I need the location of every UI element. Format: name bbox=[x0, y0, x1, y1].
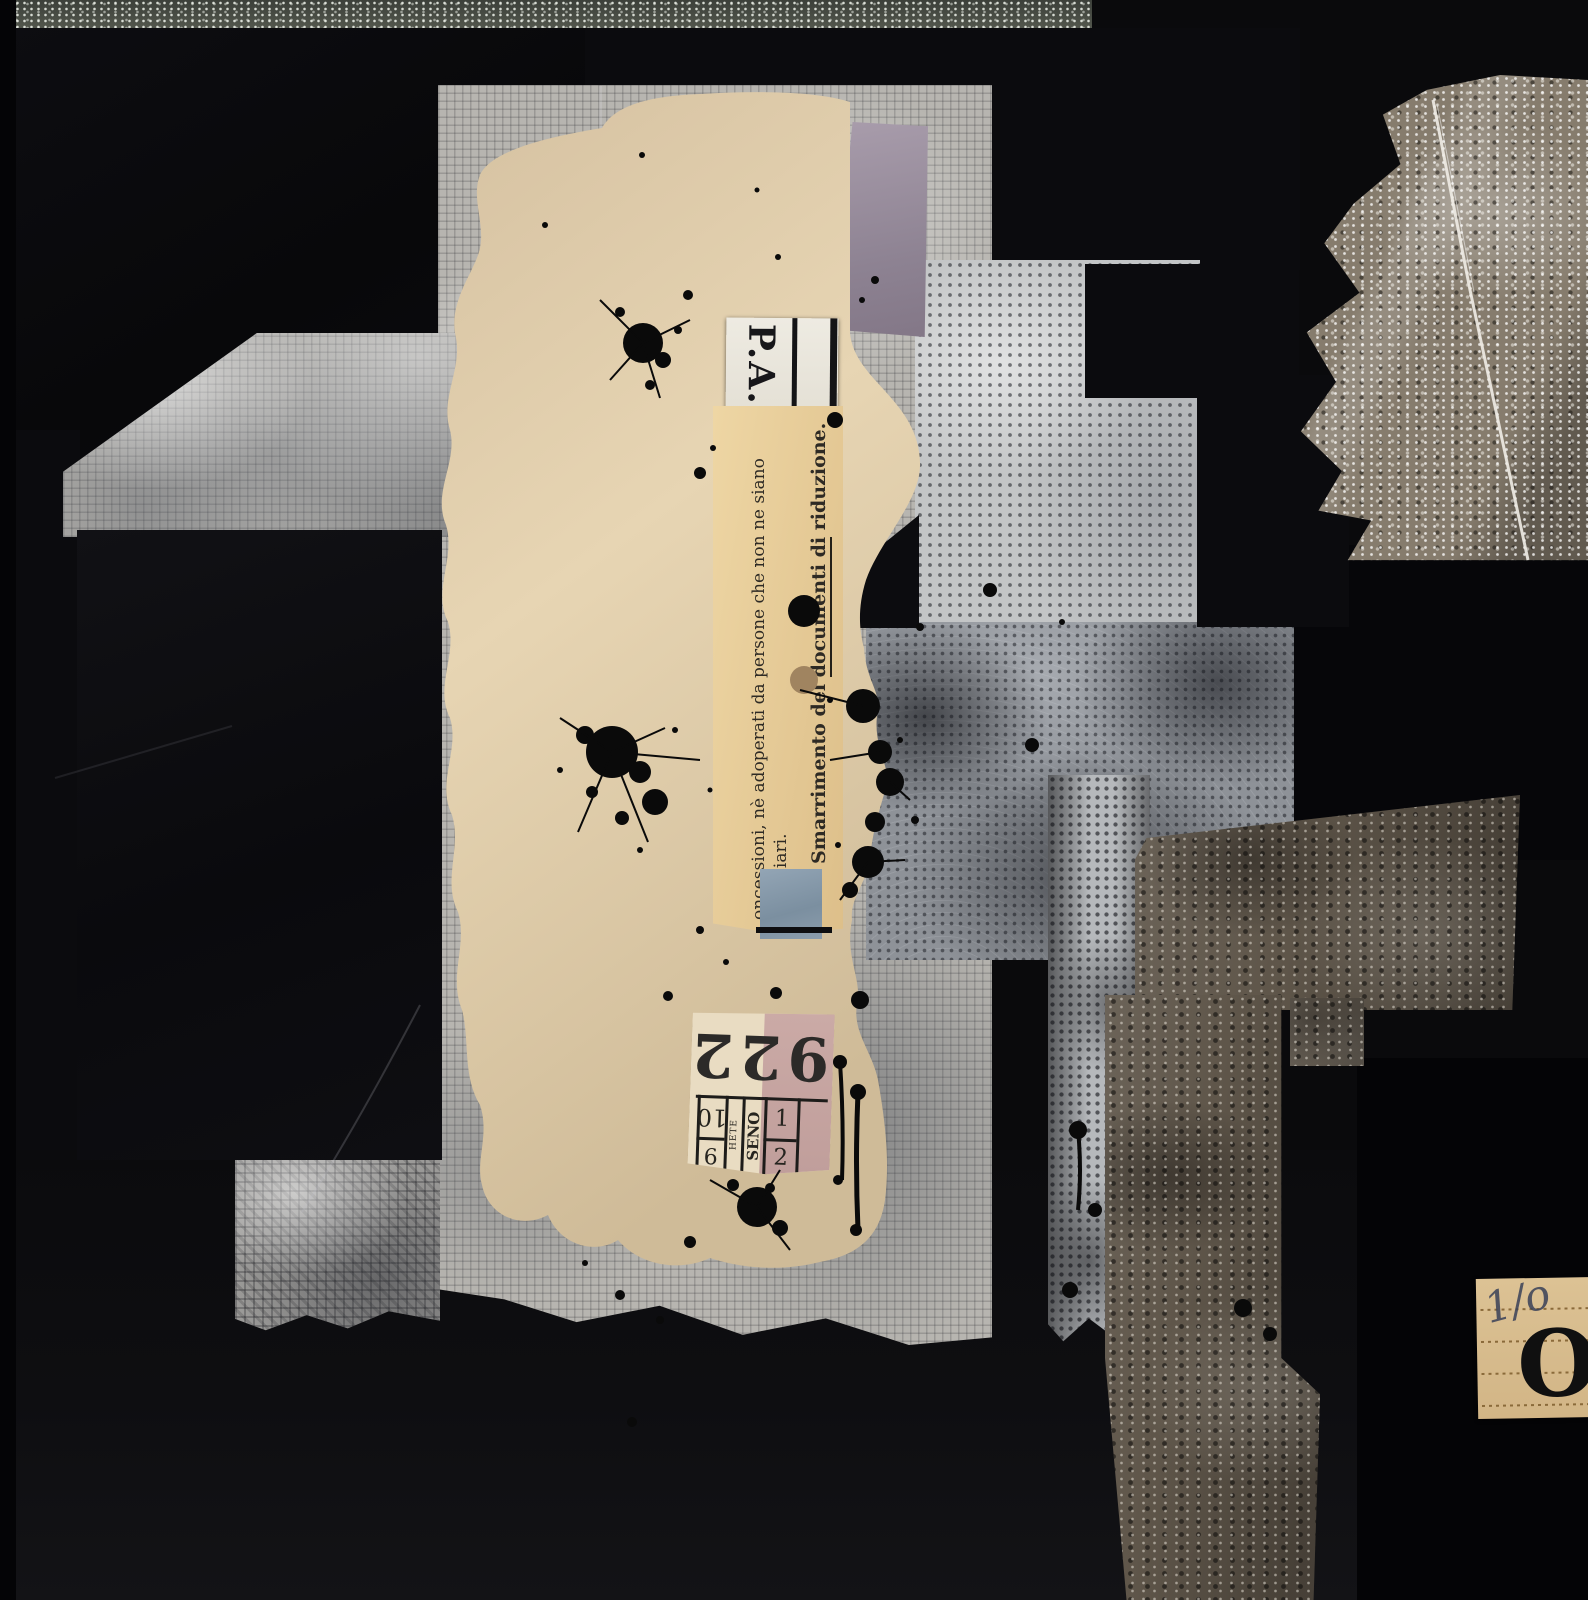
black-edge-left bbox=[0, 0, 16, 1600]
purple-paper-patch bbox=[846, 122, 928, 337]
line3-lead: Smarrimento del bbox=[808, 677, 830, 864]
black-block-upper-right bbox=[1085, 264, 1299, 398]
ticket-o-letter: O bbox=[1516, 1317, 1588, 1410]
ticket-italian-strip: oncessioni, nè adoperati da persone che … bbox=[713, 406, 843, 934]
cell-2: 2 bbox=[765, 1141, 796, 1173]
stippled-strip bbox=[0, 0, 1092, 30]
italian-line-2: eneficiari. bbox=[771, 406, 792, 920]
pa-rule-thin bbox=[792, 318, 798, 412]
houndstooth-patch-bottom-left bbox=[235, 1146, 440, 1336]
collage-canvas: P.A. oncessioni, nè adoperati da persone… bbox=[0, 0, 1588, 1600]
italian-line-3: Smarrimento del documenti di riduzione. bbox=[808, 406, 830, 864]
line3-underlined: documenti di bbox=[808, 537, 832, 677]
cell-hete: HETE bbox=[725, 1099, 743, 1171]
ticket-o: 1/o O bbox=[1476, 1277, 1588, 1419]
cell-10: 10 bbox=[698, 1098, 725, 1137]
blue-square-underline bbox=[756, 927, 832, 933]
italian-text-block: oncessioni, nè adoperati da persone che … bbox=[713, 406, 843, 934]
black-slab-left-center bbox=[77, 530, 442, 1160]
ticket-922-number: 922 bbox=[694, 1012, 833, 1101]
black-strip-top-center bbox=[585, 28, 907, 92]
ticket-922: 922 10 9 HETE SENO 1 2 bbox=[687, 1010, 835, 1177]
italian-line-1: oncessioni, nè adoperati da persone che … bbox=[749, 406, 770, 920]
line3-tail: riduzione. bbox=[808, 423, 830, 537]
silver-foil-fragment bbox=[1295, 75, 1588, 570]
cell-seno: SENO bbox=[742, 1099, 765, 1172]
bronze-foil-join bbox=[1290, 998, 1364, 1066]
cell-1: 1 bbox=[766, 1100, 797, 1137]
ticket-pa: P.A. bbox=[726, 318, 839, 413]
paper-edge-highlight bbox=[599, 86, 602, 332]
pa-rule-thick bbox=[830, 318, 838, 412]
